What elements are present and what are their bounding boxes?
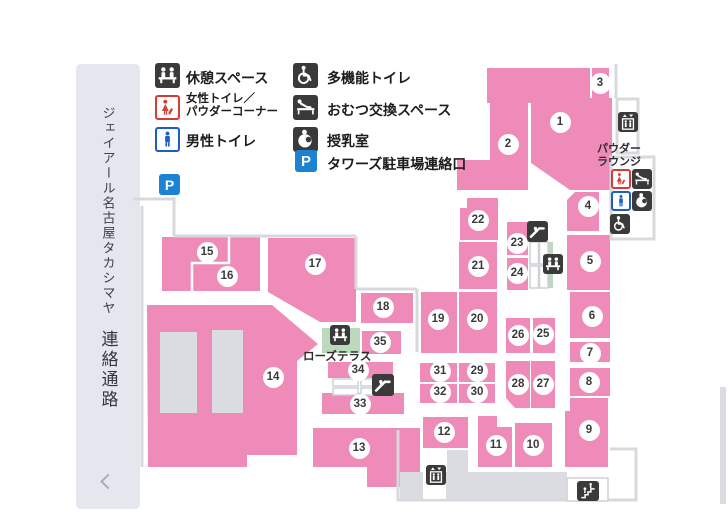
escalator-icon [527,221,548,242]
area-24-badge: 24 [507,263,528,284]
area-15-badge: 15 [197,242,218,263]
area-27-badge: 27 [533,374,554,395]
area-22-badge: 22 [468,210,489,231]
area-29-badge: 29 [467,361,488,382]
right-edge-divider [720,387,726,504]
area-16-badge: 16 [217,266,238,287]
area-1-badge: 1 [550,112,571,133]
nursing-room-icon [293,127,318,152]
map-parking-icon: P [159,174,180,195]
rest-space-icon [330,325,350,345]
area-33-badge: 33 [350,394,371,415]
rest-space-icon [155,63,180,88]
area-21-badge: 21 [468,256,489,277]
area-30-badge: 30 [467,382,488,403]
floor-map-page: ジェイアール名古屋タカシマヤ連絡通路 [0,0,728,515]
area-20-badge: 20 [467,309,488,330]
female-toilet-icon [611,169,631,189]
powder-lounge-line2: ラウンジ [597,156,641,168]
area-5-badge: 5 [580,251,601,272]
area-25-badge: 25 [533,324,554,345]
legend-label-diaper: おむつ交換スペース [327,100,451,120]
accessible-toilet-icon [610,214,630,234]
area-12-badge: 12 [434,422,455,443]
male-toilet-icon [155,127,180,152]
legend-label-parking: タワーズ駐車場連絡口 [327,154,466,174]
accessible-toilet-icon [293,63,318,88]
area-13-badge: 13 [349,438,370,459]
area-stub-shape [400,293,409,320]
tower-parking-icon: P [295,150,317,172]
legend-label-female-line1: 女性トイレ／ [186,93,255,105]
elevator-icon [618,112,638,132]
area-32-badge: 32 [430,382,451,403]
elevator-icon [426,465,446,485]
area-6-badge: 6 [582,306,603,327]
area-3-badge: 3 [590,73,611,94]
rest-space-icon [543,254,563,274]
area-28-badge: 28 [508,374,529,395]
area-7-badge: 7 [580,343,601,364]
area-31-badge: 31 [430,361,451,382]
area-9-badge: 9 [579,420,600,441]
area-18-badge: 18 [373,297,394,318]
escalator-icon [372,374,394,396]
area-19-badge: 19 [428,309,449,330]
area-2-badge: 2 [498,134,519,155]
area-17-badge: 17 [305,254,326,275]
area-4-badge: 4 [578,196,599,217]
diaper-change-icon [293,95,318,120]
legend-label-female-line2: パウダーコーナー [186,106,278,118]
area-8-badge: 8 [579,372,600,393]
male-toilet-icon [611,191,631,211]
area-17-shape [268,238,356,322]
diaper-change-icon [632,169,652,189]
female-toilet-icon [155,95,180,120]
stairs-icon [577,481,599,501]
legend-label-accessible: 多機能トイレ [327,68,411,88]
area-35-badge: 35 [370,332,391,353]
legend-label-female: 女性トイレ／ パウダーコーナー [186,93,278,119]
area-26-badge: 26 [508,325,529,346]
parking-letter: P [301,154,311,169]
powder-lounge-line1: パウダー [597,143,641,155]
powder-lounge-label: パウダー ラウンジ [597,143,641,168]
nursing-room-icon [632,191,652,211]
area-23-badge: 23 [507,233,528,254]
area-14-badge: 14 [263,367,284,388]
legend-label-male: 男性トイレ [186,131,256,151]
legend-label-nursing: 授乳室 [327,131,369,151]
parking-letter: P [165,178,174,192]
area-34-badge: 34 [348,360,369,381]
legend-label-rest: 休憩スペース [186,68,268,88]
area-10-badge: 10 [523,435,544,456]
area-11-badge: 11 [486,435,507,456]
